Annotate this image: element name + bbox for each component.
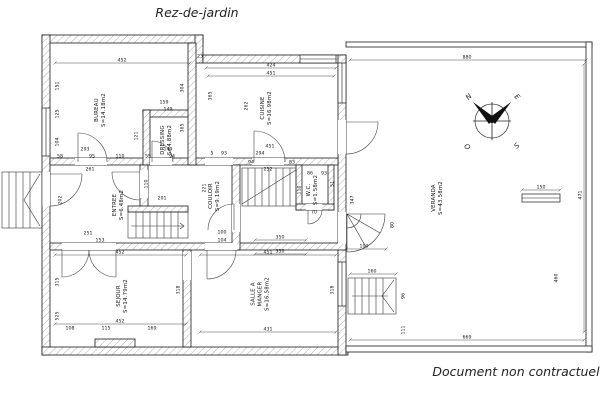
dimension-text: 111 — [401, 326, 407, 335]
compass-point-S: S — [513, 141, 522, 150]
room-label-bureau: BUREAU — [94, 98, 100, 122]
dimension-text: 880 — [463, 55, 472, 61]
page-title: Rez-de-jardin — [155, 5, 238, 20]
dimension-text: 202 — [58, 196, 64, 205]
dimension-text: 100 — [360, 244, 369, 250]
dimension-text: 94 — [248, 160, 254, 166]
room-label-sejour: SEJOUR — [116, 285, 122, 307]
dimension-text: 318 — [176, 286, 182, 295]
dimension-text: 110 — [116, 154, 125, 160]
dimension-text: 452 — [118, 58, 127, 64]
dimension-text: 452 — [116, 319, 125, 325]
dimension-text: 460 — [554, 274, 560, 283]
dimension-text: 93 — [221, 151, 227, 157]
dimension-text: 93 — [321, 171, 327, 177]
dimension-text: 251 — [84, 231, 93, 237]
dimension-text: 452 — [116, 250, 125, 256]
dimension-text: 104 — [55, 138, 61, 147]
room-label-couloir: COULOIR — [208, 183, 214, 209]
stair-entree — [128, 212, 188, 238]
dimension-lines — [53, 58, 587, 341]
room-label-salle-a-manger: MANGER — [258, 281, 264, 306]
dimension-text: 669 — [463, 335, 472, 341]
dimension-text: 100 — [218, 230, 227, 236]
dimension-text: 451 — [266, 144, 275, 150]
dimension-text: 424 — [267, 63, 276, 69]
dimension-text: 347 — [350, 196, 356, 205]
dimension-text: 294 — [256, 151, 265, 157]
dimension-text: 350 — [276, 249, 285, 255]
dimension-text: 318 — [330, 286, 336, 295]
dimension-text: 169 — [148, 326, 157, 332]
dimension-text: 70 — [311, 210, 317, 216]
dimension-text: 149 — [164, 107, 173, 113]
room-label-veranda: S=43.58m2 — [438, 181, 444, 215]
compass-rose: NEOS — [462, 92, 522, 152]
room-label-dressing: S=4.88m2 — [167, 125, 173, 155]
dimension-text: 95 — [89, 154, 95, 160]
dimension-text: 365 — [180, 124, 186, 133]
room-label-wc: W.C. — [306, 184, 312, 197]
floor-plan-page: Rez-de-jardin Document non contractuel — [0, 0, 615, 410]
dimension-text: 125 — [55, 110, 61, 119]
dimension-texts: 4522342445188015112510429358951103043651… — [55, 54, 584, 341]
dimension-text: 115 — [102, 326, 111, 332]
stair-veranda-bottom — [348, 278, 396, 314]
dimension-text: 80 — [390, 222, 396, 228]
dimension-text: 350 — [276, 235, 285, 241]
dimension-text: 451 — [267, 71, 276, 77]
room-label-sejour: S=14.79m2 — [123, 279, 129, 313]
dimension-text: 104 — [218, 238, 227, 244]
dimension-text: 315 — [55, 278, 61, 287]
dimension-text: 262 — [244, 102, 250, 111]
dimension-text: 160 — [368, 269, 377, 275]
room-label-bureau: S=14.18m2 — [101, 93, 107, 127]
room-label-dressing: DRESSING — [160, 125, 166, 155]
dimension-text: 304 — [180, 84, 186, 93]
dimension-text: 159 — [160, 100, 169, 106]
dimension-text: 5 — [211, 151, 214, 157]
room-label-veranda: VERANDA — [431, 184, 437, 212]
dimension-text: 96 — [401, 293, 407, 299]
dimension-text: 121 — [134, 132, 140, 141]
dimension-text: 525 — [55, 312, 61, 321]
room-label-salle-a-manger: SALLE A — [251, 282, 257, 306]
dimension-text: 51 — [330, 181, 336, 187]
dimension-text: 201 — [158, 196, 167, 202]
dimension-text: 471 — [578, 191, 584, 200]
stair-outside-left — [2, 172, 42, 228]
dimension-text: 221 — [202, 184, 208, 193]
room-label-cuisine: CUISINE — [260, 96, 266, 120]
dimension-text: 55 — [145, 154, 151, 160]
dimension-text: 58 — [57, 154, 63, 160]
dimension-text: 150 — [537, 185, 546, 191]
dimension-text: 110 — [297, 186, 303, 195]
room-label-wc: S=1.58m2 — [313, 175, 319, 205]
floor-plan-drawing: Rez-de-jardin Document non contractuel — [0, 0, 615, 410]
dimension-text: 293 — [81, 147, 90, 153]
dimension-text: 110 — [144, 180, 150, 189]
dimension-text: 252 — [264, 167, 273, 173]
dimension-text: 431 — [264, 327, 273, 333]
room-label-cuisine: S=16.98m2 — [267, 91, 273, 125]
room-label-entree: S=6.48m2 — [119, 190, 125, 220]
dimension-text: 108 — [66, 326, 75, 332]
room-label-couloir: S=9.19m2 — [215, 181, 221, 211]
footer-disclaimer: Document non contractuel — [432, 364, 600, 379]
dimension-text: 83 — [289, 160, 295, 166]
dimension-text: 451 — [264, 250, 273, 256]
compass-point-O: O — [462, 142, 472, 152]
dimension-text: 151 — [55, 82, 61, 91]
dimension-text: 365 — [208, 92, 214, 101]
room-label-entree: ENTREE — [112, 193, 118, 216]
dimension-text: 261 — [86, 167, 95, 173]
dimension-text: 23 — [197, 54, 203, 60]
stair-couloir — [242, 168, 296, 206]
compass-point-E: E — [513, 93, 522, 102]
compass-point-N: N — [464, 92, 474, 102]
room-label-salle-a-manger: S=16.58m2 — [265, 277, 271, 311]
dimension-text: 153 — [96, 238, 105, 244]
